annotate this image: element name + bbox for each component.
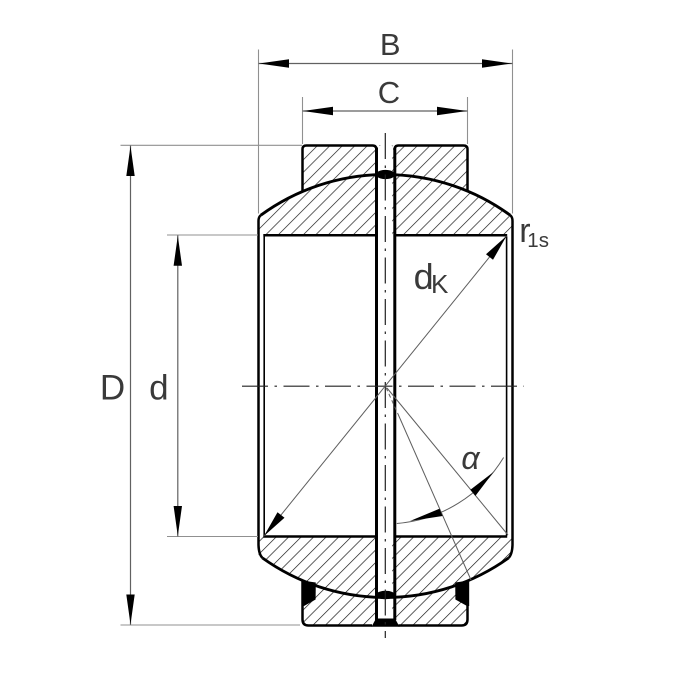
- svg-text:d: d: [149, 369, 168, 408]
- svg-text:B: B: [380, 27, 401, 62]
- svg-text:C: C: [378, 75, 400, 110]
- svg-text:1s: 1s: [527, 229, 549, 252]
- svg-text:α: α: [461, 440, 480, 476]
- svg-text:K: K: [431, 269, 449, 299]
- svg-text:D: D: [100, 369, 125, 408]
